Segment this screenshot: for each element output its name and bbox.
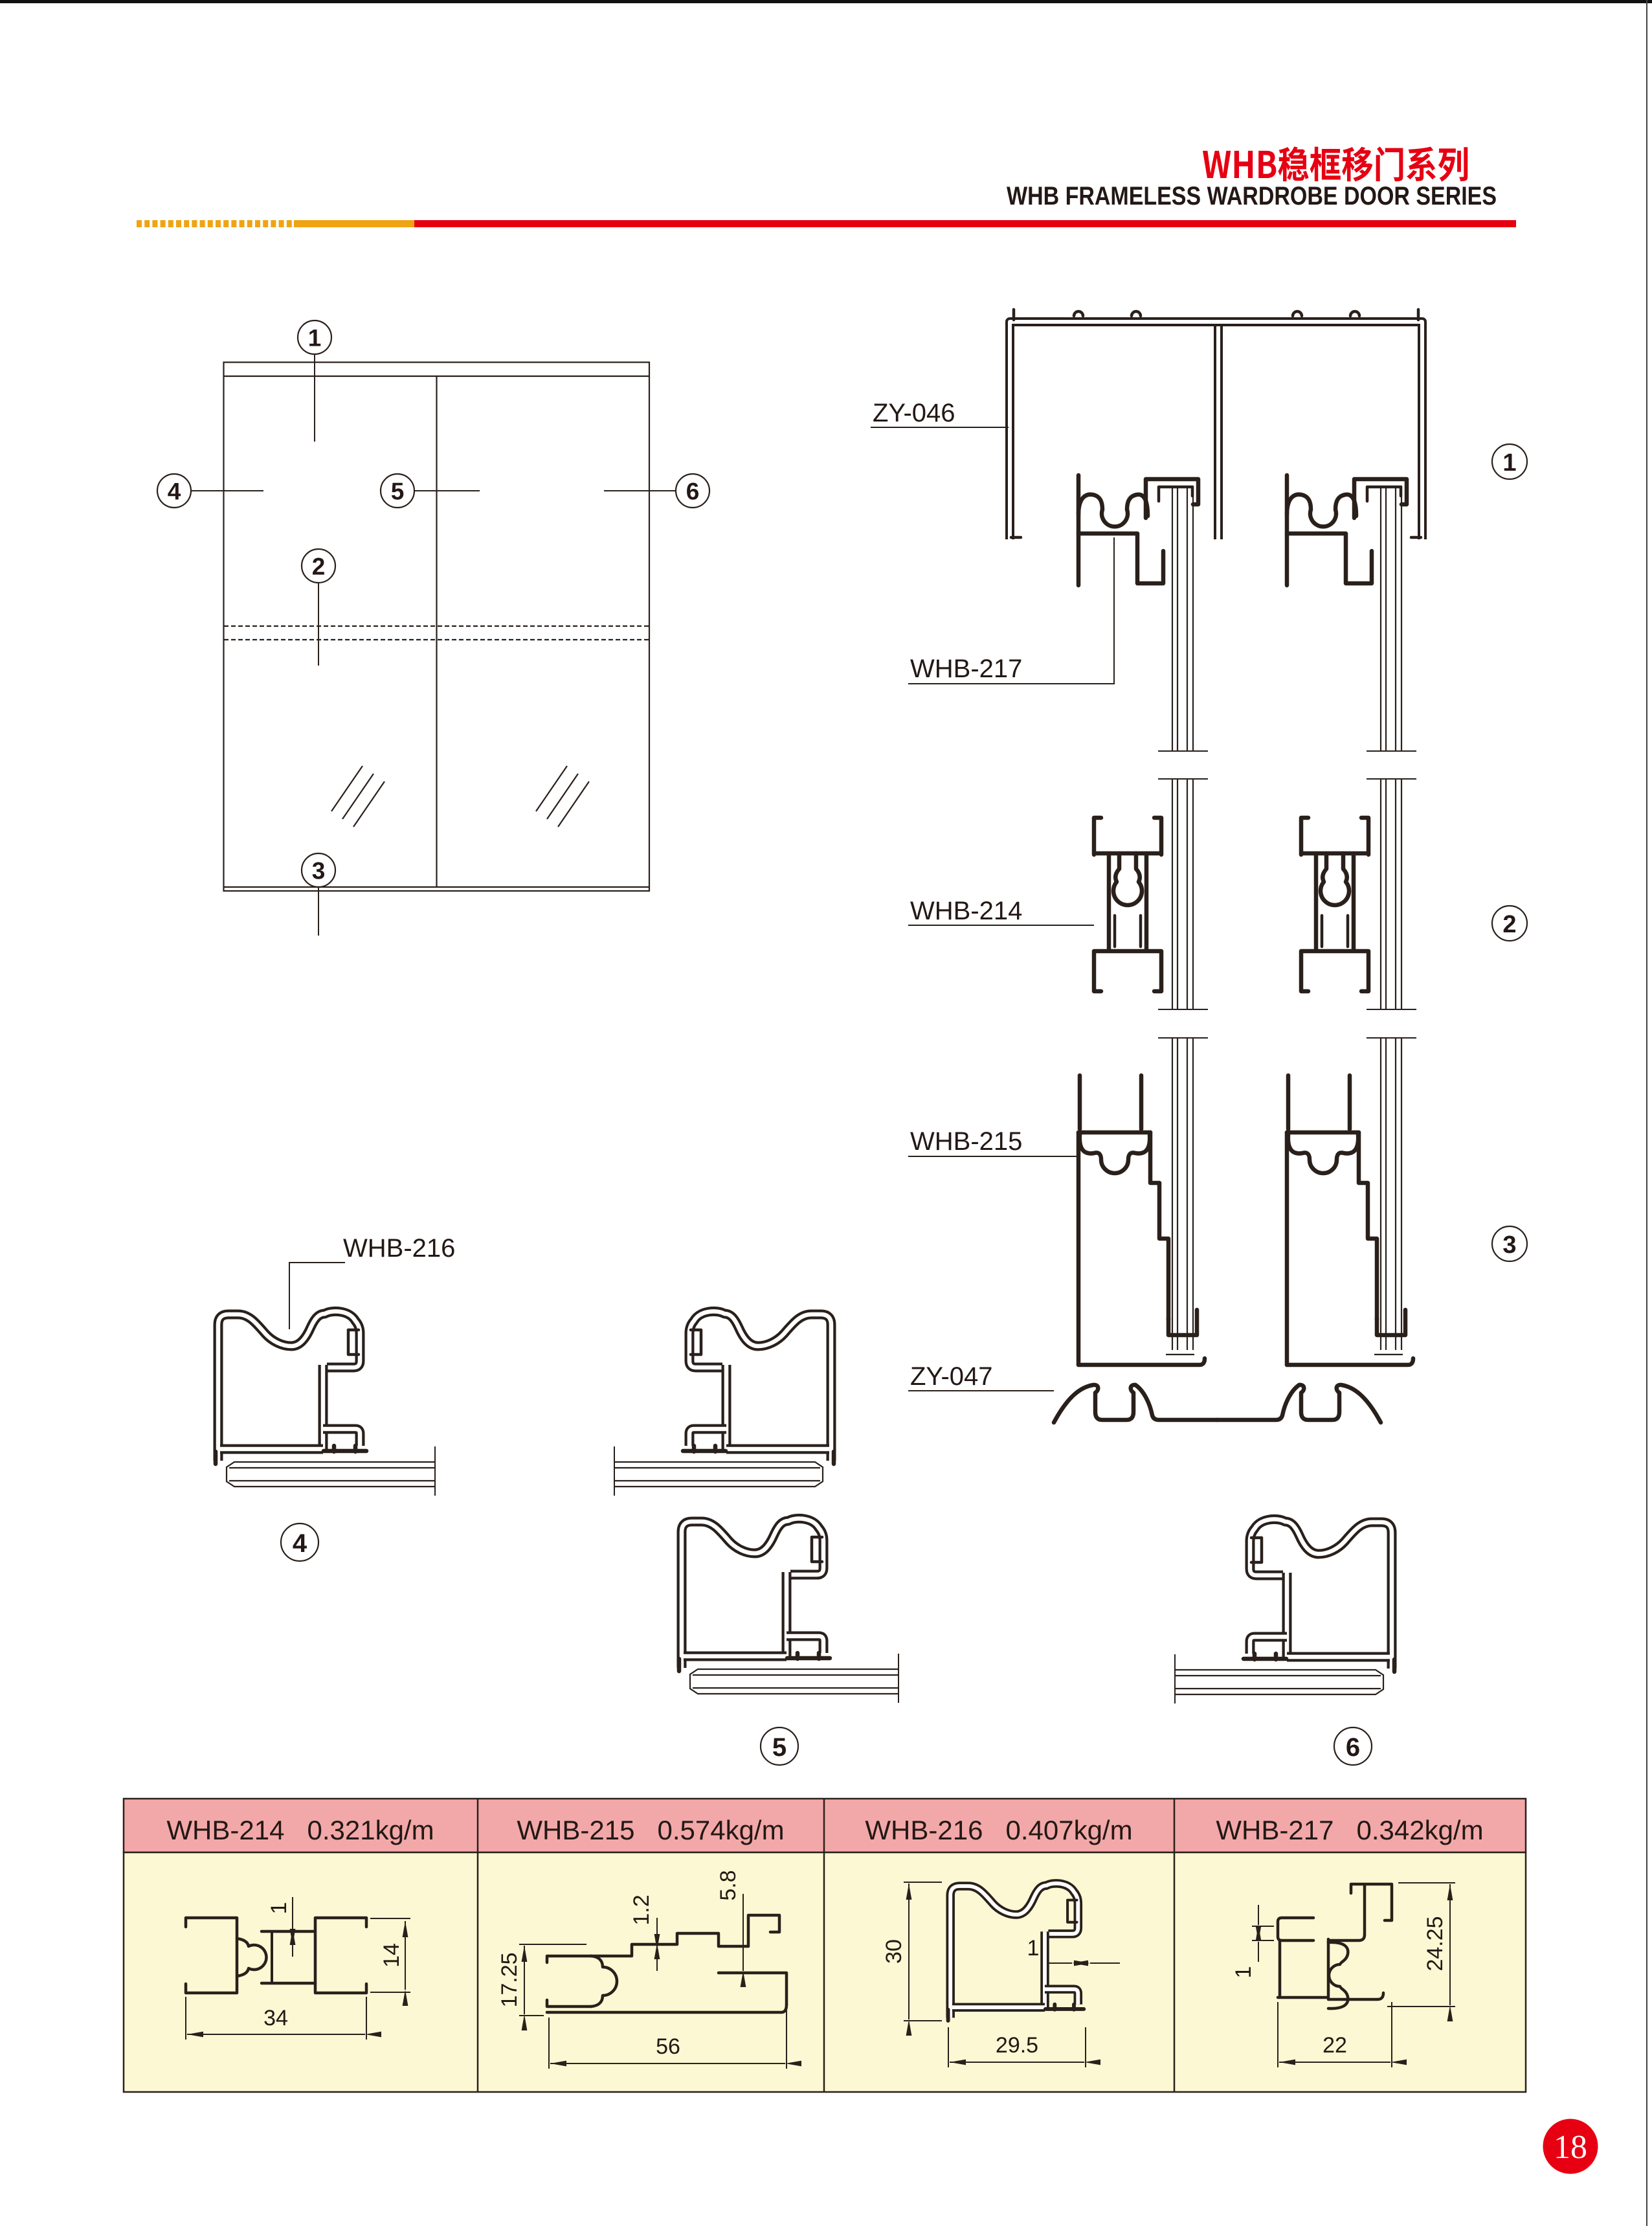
svg-text:1: 1 [1231, 1966, 1256, 1979]
svg-text:1: 1 [1502, 449, 1516, 477]
svg-text:14: 14 [379, 1943, 404, 1968]
svg-text:ZY-047: ZY-047 [910, 1362, 993, 1391]
svg-text:WHB-216 0.407kg/m: WHB-216 0.407kg/m [865, 1815, 1132, 1845]
svg-text:1: 1 [308, 324, 322, 351]
svg-text:56: 56 [656, 2034, 680, 2059]
svg-text:17.25: 17.25 [497, 1952, 522, 2007]
svg-text:18: 18 [1554, 2129, 1587, 2166]
svg-text:WHB-215: WHB-215 [910, 1127, 1022, 1156]
svg-text:30: 30 [882, 1939, 906, 1964]
svg-text:4: 4 [293, 1529, 307, 1558]
svg-text:WHB-217: WHB-217 [910, 655, 1022, 683]
svg-text:WHB-217 0.342kg/m: WHB-217 0.342kg/m [1216, 1815, 1483, 1845]
svg-text:1: 1 [267, 1902, 291, 1915]
svg-text:4: 4 [168, 478, 181, 504]
svg-text:6: 6 [686, 478, 700, 504]
svg-text:WHB-214 0.321kg/m: WHB-214 0.321kg/m [166, 1815, 434, 1845]
svg-text:ZY-046: ZY-046 [873, 399, 955, 427]
svg-text:2: 2 [1502, 911, 1516, 938]
svg-text:WHB FRAMELESS WARDROBE DOOR SE: WHB FRAMELESS WARDROBE DOOR SERIES [1007, 182, 1497, 210]
svg-text:WHB-215 0.574kg/m: WHB-215 0.574kg/m [517, 1815, 784, 1845]
svg-text:1.2: 1.2 [629, 1894, 654, 1925]
svg-text:WHB-214: WHB-214 [910, 897, 1022, 925]
svg-text:1: 1 [1027, 1936, 1040, 1961]
svg-text:5.8: 5.8 [716, 1870, 741, 1900]
svg-text:29.5: 29.5 [996, 2033, 1038, 2058]
svg-text:22: 22 [1323, 2033, 1347, 2058]
svg-text:5: 5 [391, 478, 405, 504]
svg-text:WHB-216: WHB-216 [343, 1234, 455, 1263]
svg-text:34: 34 [263, 2006, 288, 2030]
svg-text:24.25: 24.25 [1423, 1916, 1447, 1971]
svg-text:6: 6 [1346, 1733, 1360, 1762]
svg-text:5: 5 [772, 1733, 787, 1762]
svg-text:2: 2 [312, 553, 326, 579]
svg-text:3: 3 [1502, 1231, 1516, 1259]
svg-text:3: 3 [312, 857, 326, 884]
